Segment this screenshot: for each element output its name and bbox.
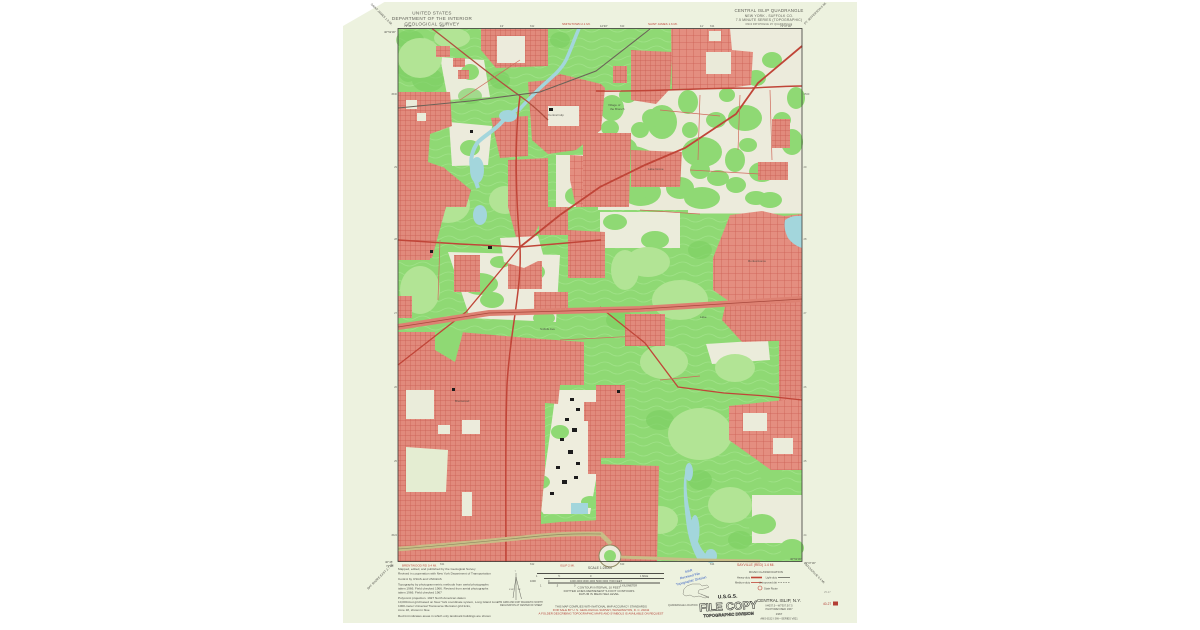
svg-text:11': 11' <box>700 24 704 28</box>
svg-text:7.5 MINUTE SERIES (TOPOGRAPHIC: 7.5 MINUTE SERIES (TOPOGRAPHIC) <box>736 18 802 22</box>
svg-text:DEPARTMENT OF THE INTERIOR: DEPARTMENT OF THE INTERIOR <box>392 16 473 21</box>
svg-text:U.S.G.S.: U.S.G.S. <box>718 593 739 600</box>
svg-text:1000 2000 3000 4000 5000: 1000 2000 3000 4000 5000 6000 7000 FEET <box>570 579 622 583</box>
svg-text:40°52'30": 40°52'30" <box>790 557 802 561</box>
svg-text:632: 632 <box>530 562 535 566</box>
svg-text:0°48': 0°48' <box>509 589 515 591</box>
svg-text:SCALE 1:24000: SCALE 1:24000 <box>588 566 612 570</box>
svg-text:1 MILE: 1 MILE <box>640 574 648 578</box>
svg-text:4524: 4524 <box>391 533 397 537</box>
svg-text:ISLIP 2 MI.: ISLIP 2 MI. <box>560 564 575 568</box>
svg-text:73°07'30": 73°07'30" <box>780 24 792 28</box>
svg-text:taken 1966. Field checked 196: taken 1966. Field checked 1967 <box>398 591 442 595</box>
svg-text:1 KILOMETER: 1 KILOMETER <box>620 584 637 588</box>
svg-text:Medium-duty: Medium-duty <box>735 581 751 585</box>
svg-text:Central Islip: Central Islip <box>548 113 564 117</box>
svg-text:Ronkonkoma: Ronkonkoma <box>748 259 766 263</box>
svg-text:CENTRAL ISLIP QUADRANGLE: CENTRAL ISLIP QUADRANGLE <box>735 8 804 13</box>
svg-text:1967: 1967 <box>776 612 783 616</box>
svg-text:NEW YORK - SUFFOLK CO.: NEW YORK - SUFFOLK CO. <box>745 14 793 18</box>
svg-text:GEOLOGICAL SURVEY: GEOLOGICAL SURVEY <box>404 22 459 27</box>
svg-text:4530: 4530 <box>804 92 810 96</box>
svg-text:PHOTOREVISED 1967: PHOTOREVISED 1967 <box>765 607 793 611</box>
svg-text:Suffolk Ave: Suffolk Ave <box>540 327 555 331</box>
svg-text:DECLINATION AT CENTER OF SHEET: DECLINATION AT CENTER OF SHEET <box>500 604 543 607</box>
svg-text:Light-duty: Light-duty <box>766 576 778 580</box>
svg-text:SAYVILLE (RED) 1.4 MI.: SAYVILLE (RED) 1.4 MI. <box>737 563 774 567</box>
svg-text:1000: 1000 <box>530 579 536 583</box>
svg-text:zone 18, shown in blue: zone 18, shown in blue <box>398 608 430 612</box>
svg-text:13': 13' <box>500 24 504 28</box>
svg-text:40-27: 40-27 <box>823 602 831 606</box>
svg-text:634: 634 <box>710 562 715 566</box>
svg-text:634: 634 <box>710 24 715 28</box>
svg-text:73°15': 73°15' <box>404 24 412 28</box>
svg-text:UNITED STATES: UNITED STATES <box>412 11 451 16</box>
svg-text:Mapped, edited, and published: Mapped, edited, and published by the Geo… <box>398 567 476 571</box>
svg-text:SMITHTOWN 2.1 MI.: SMITHTOWN 2.1 MI. <box>562 22 591 26</box>
svg-text:QUADRANGLE LOCATION: QUADRANGLE LOCATION <box>668 604 698 607</box>
svg-text:the Branch: the Branch <box>610 107 625 111</box>
svg-text:Brentwood: Brentwood <box>455 399 470 403</box>
svg-text:State Route: State Route <box>764 587 778 591</box>
svg-text:ROAD CLASSIFICATION: ROAD CLASSIFICATION <box>749 570 783 574</box>
svg-text:Red tint indicates areas in wh: Red tint indicates areas in which only l… <box>398 614 491 618</box>
svg-text:13°: 13° <box>518 589 521 591</box>
svg-text:631: 631 <box>440 562 445 566</box>
svg-text:Heavy-duty: Heavy-duty <box>737 576 751 580</box>
svg-text:25-27: 25-27 <box>824 590 831 594</box>
svg-text:12'30": 12'30" <box>600 24 608 28</box>
svg-text:Lake: Lake <box>700 315 707 319</box>
svg-text:AMS 6152 I SW—SERIES V821: AMS 6152 I SW—SERIES V821 <box>760 617 798 621</box>
svg-text:Revised in cooperation with Ne: Revised in cooperation with New York Dep… <box>398 572 491 576</box>
svg-text:A FOLDER DESCRIBING TOPOGRAPHI: A FOLDER DESCRIBING TOPOGRAPHIC MAPS AND… <box>539 611 664 615</box>
svg-text:N4037.5—W7307.5/7.5: N4037.5—W7307.5/7.5 <box>765 604 793 608</box>
svg-text:Lake Grove: Lake Grove <box>648 167 664 171</box>
svg-text:40°52'30": 40°52'30" <box>384 30 396 34</box>
svg-text:Control by USGS and USC&GS: Control by USGS and USC&GS <box>398 577 442 581</box>
svg-text:CENTRAL ISLIP, N.Y.: CENTRAL ISLIP, N.Y. <box>757 598 801 603</box>
svg-text:4530: 4530 <box>391 92 397 96</box>
svg-text:SAINT JAMES 1.6 MI.: SAINT JAMES 1.6 MI. <box>648 22 678 26</box>
svg-text:633: 633 <box>620 562 625 566</box>
svg-text:Unimproved dirt: Unimproved dirt <box>759 581 778 585</box>
svg-text:632: 632 <box>530 24 535 28</box>
svg-text:631: 631 <box>440 24 445 28</box>
svg-text:DATUM IS MEAN SEA LEVEL: DATUM IS MEAN SEA LEVEL <box>579 592 620 596</box>
svg-text:633: 633 <box>620 24 625 28</box>
svg-text:*: * <box>515 570 516 574</box>
